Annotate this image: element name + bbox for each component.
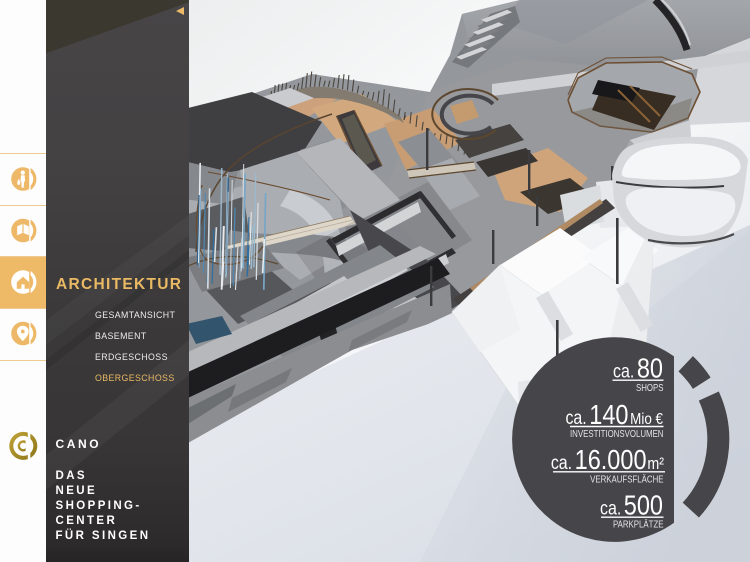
svg-text:VERKAUFSFLÄCHE: VERKAUFSFLÄCHE	[590, 474, 663, 485]
svg-text:INVESTITIONSVOLUMEN: INVESTITIONSVOLUMEN	[570, 428, 663, 439]
svg-text:SHOPS: SHOPS	[636, 382, 664, 393]
svg-text:PARKPLÄTZE: PARKPLÄTZE	[613, 518, 664, 529]
